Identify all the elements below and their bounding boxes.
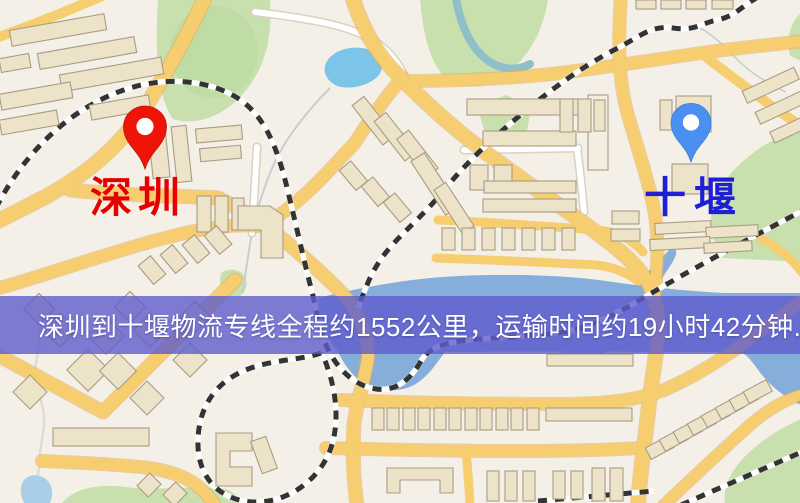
road-south-horizontal-2 [326, 448, 641, 451]
destination-city-label: 十堰 [644, 177, 744, 219]
pin-hole [683, 114, 699, 130]
info-banner: 深圳到十堰物流专线全程约1552公里，运输时间约19小时42分钟. [0, 296, 800, 354]
origin-city-label: 深圳 [90, 177, 186, 219]
pin-hole [136, 118, 153, 135]
map-canvas [0, 0, 800, 503]
map-screenshot: 深圳 十堰 深圳到十堰物流专线全程约1552公里，运输时间约19小时42分钟. [0, 0, 800, 503]
banner-text: 深圳到十堰物流专线全程约1552公里，运输时间约19小时42分钟. [0, 307, 800, 344]
